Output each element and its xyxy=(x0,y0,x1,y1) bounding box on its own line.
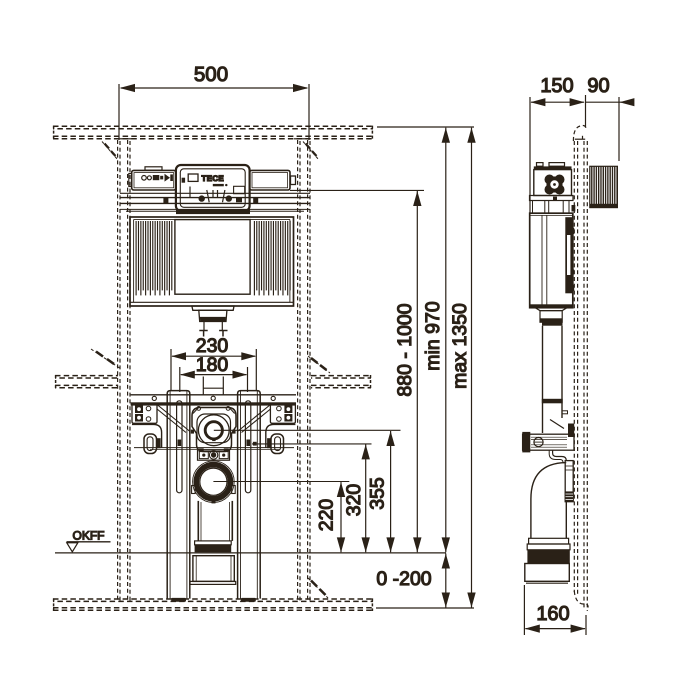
svg-text:TECE: TECE xyxy=(202,174,225,183)
svg-text:880 - 1000: 880 - 1000 xyxy=(394,303,416,396)
svg-text:OKFF: OKFF xyxy=(73,529,105,543)
svg-text:90: 90 xyxy=(587,75,609,97)
svg-text:320: 320 xyxy=(343,484,365,517)
svg-text:180: 180 xyxy=(196,354,229,376)
svg-text:160: 160 xyxy=(536,603,569,625)
svg-text:0 -200: 0 -200 xyxy=(376,568,431,590)
svg-text:150: 150 xyxy=(540,75,573,97)
svg-text:355: 355 xyxy=(367,477,389,510)
svg-text:min 970: min 970 xyxy=(422,301,444,371)
svg-text:max 1350: max 1350 xyxy=(449,303,471,389)
svg-text:220: 220 xyxy=(315,499,337,532)
svg-text:500: 500 xyxy=(194,63,228,86)
